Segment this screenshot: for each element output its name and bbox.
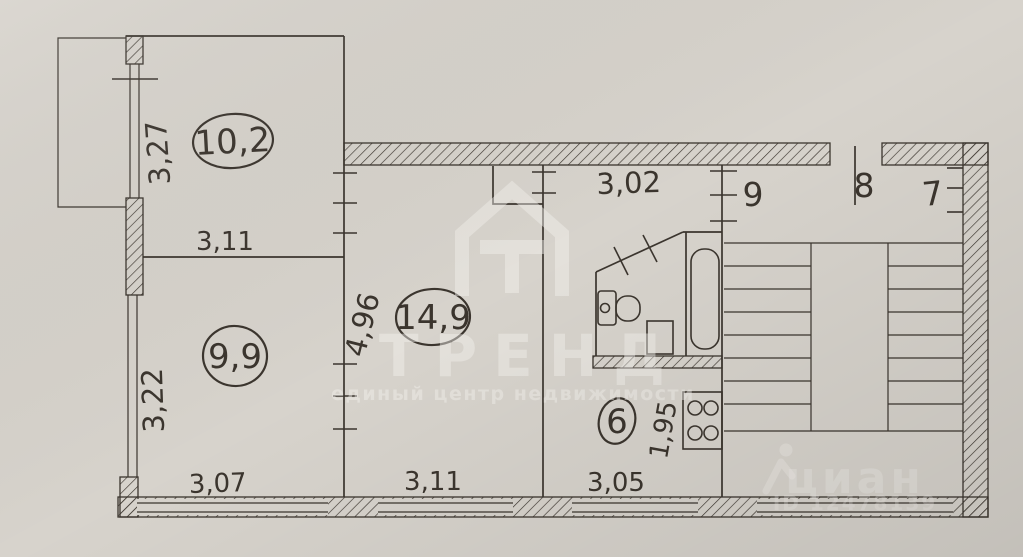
photo-shading-overlay bbox=[0, 0, 1023, 557]
floorplan-drawing: 10,2 9,9 14,9 6 3,27 3,11 3,22 3,07 4,96… bbox=[0, 0, 1023, 557]
floorplan-scan: 10,2 9,9 14,9 6 3,27 3,11 3,22 3,07 4,96… bbox=[0, 0, 1023, 557]
